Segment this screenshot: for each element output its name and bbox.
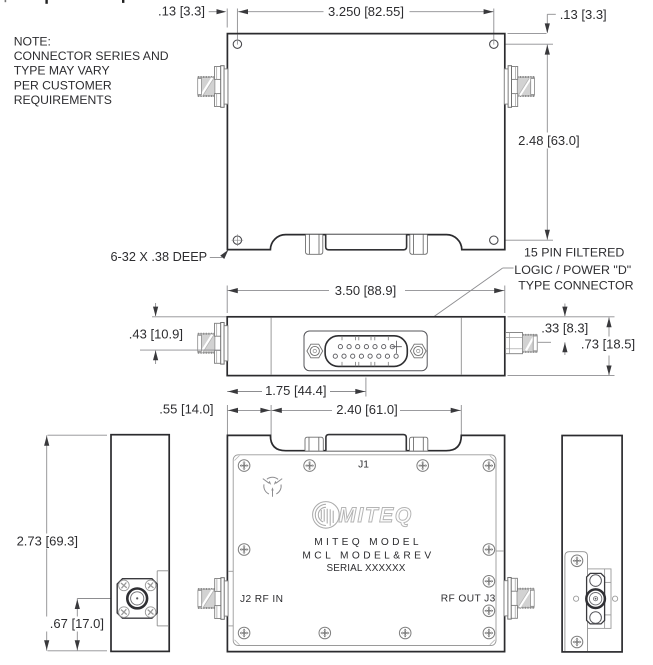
svg-text:.67 [17.0]: .67 [17.0]	[50, 616, 104, 631]
svg-text:.13 [3.3]: .13 [3.3]	[158, 4, 205, 19]
svg-text:15 PIN FILTERED: 15 PIN FILTERED	[524, 246, 624, 260]
svg-text:PER CUSTOMER: PER CUSTOMER	[14, 78, 112, 92]
svg-text:2.40 [61.0]: 2.40 [61.0]	[336, 402, 397, 417]
svg-text:1.75 [44.4]: 1.75 [44.4]	[265, 383, 326, 398]
svg-text:3.50 [88.9]: 3.50 [88.9]	[335, 283, 396, 298]
svg-text:.13 [3.3]: .13 [3.3]	[560, 7, 607, 22]
svg-text:LOGIC / POWER "D": LOGIC / POWER "D"	[514, 263, 631, 277]
svg-text:J1: J1	[358, 460, 369, 471]
svg-text:.33 [8.3]: .33 [8.3]	[541, 320, 588, 335]
svg-text:CONNECTOR SERIES AND: CONNECTOR SERIES AND	[14, 49, 169, 63]
svg-text:.73 [18.5]: .73 [18.5]	[581, 336, 635, 351]
svg-text:.43 [10.9]: .43 [10.9]	[129, 327, 183, 342]
svg-text:2.73 [69.3]: 2.73 [69.3]	[17, 533, 78, 548]
svg-text:RF OUT J3: RF OUT J3	[441, 594, 496, 605]
svg-text:MITEQ: MITEQ	[339, 504, 413, 527]
svg-text:MITEQ MODEL: MITEQ MODEL	[314, 537, 422, 548]
svg-text:SERIAL XXXXXX: SERIAL XXXXXX	[327, 563, 406, 574]
svg-text:TYPE MAY VARY: TYPE MAY VARY	[14, 64, 110, 78]
svg-text:MCL MODEL&REV: MCL MODEL&REV	[302, 551, 434, 562]
svg-text:TYPE CONNECTOR: TYPE CONNECTOR	[518, 279, 633, 293]
svg-text:J2 RF IN: J2 RF IN	[240, 594, 283, 605]
svg-text:6-32 X .38 DEEP: 6-32 X .38 DEEP	[111, 250, 208, 264]
svg-text:2.48 [63.0]: 2.48 [63.0]	[518, 133, 579, 148]
svg-text:REQUIREMENTS: REQUIREMENTS	[14, 93, 112, 107]
svg-text:3.250 [82.55]: 3.250 [82.55]	[328, 4, 404, 19]
svg-text:NOTE:: NOTE:	[14, 35, 51, 49]
svg-text:.55 [14.0]: .55 [14.0]	[159, 402, 213, 417]
